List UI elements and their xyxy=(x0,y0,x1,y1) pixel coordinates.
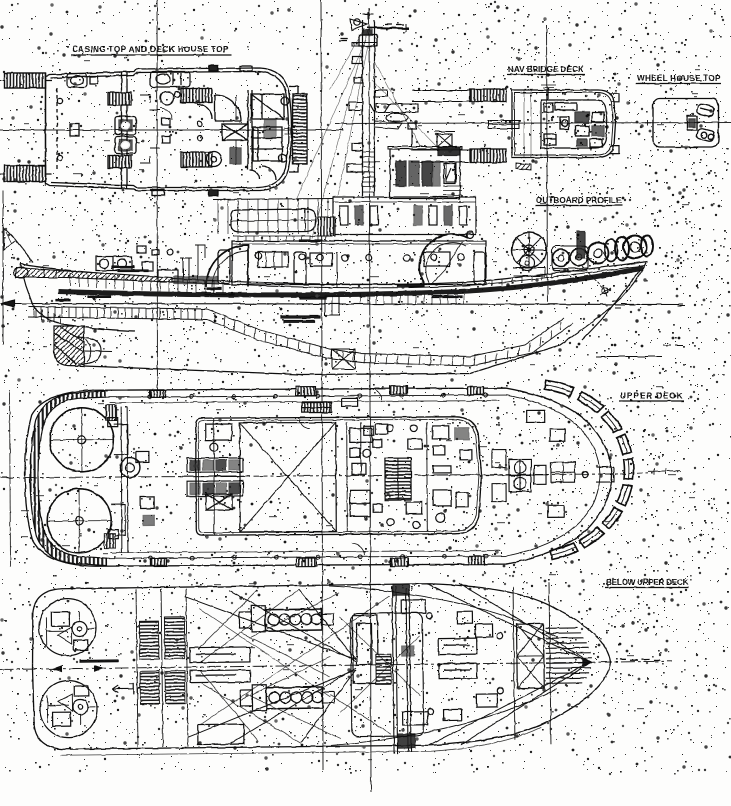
svg-text:NAV BRIDGE DECK: NAV BRIDGE DECK xyxy=(508,65,584,74)
svg-text:OUTBOARD PROFILE: OUTBOARD PROFILE xyxy=(536,196,622,205)
svg-text:UPPER DECK: UPPER DECK xyxy=(620,392,683,401)
svg-text:CASING TOP AND DECK HOUSE TOP: CASING TOP AND DECK HOUSE TOP xyxy=(72,45,229,54)
